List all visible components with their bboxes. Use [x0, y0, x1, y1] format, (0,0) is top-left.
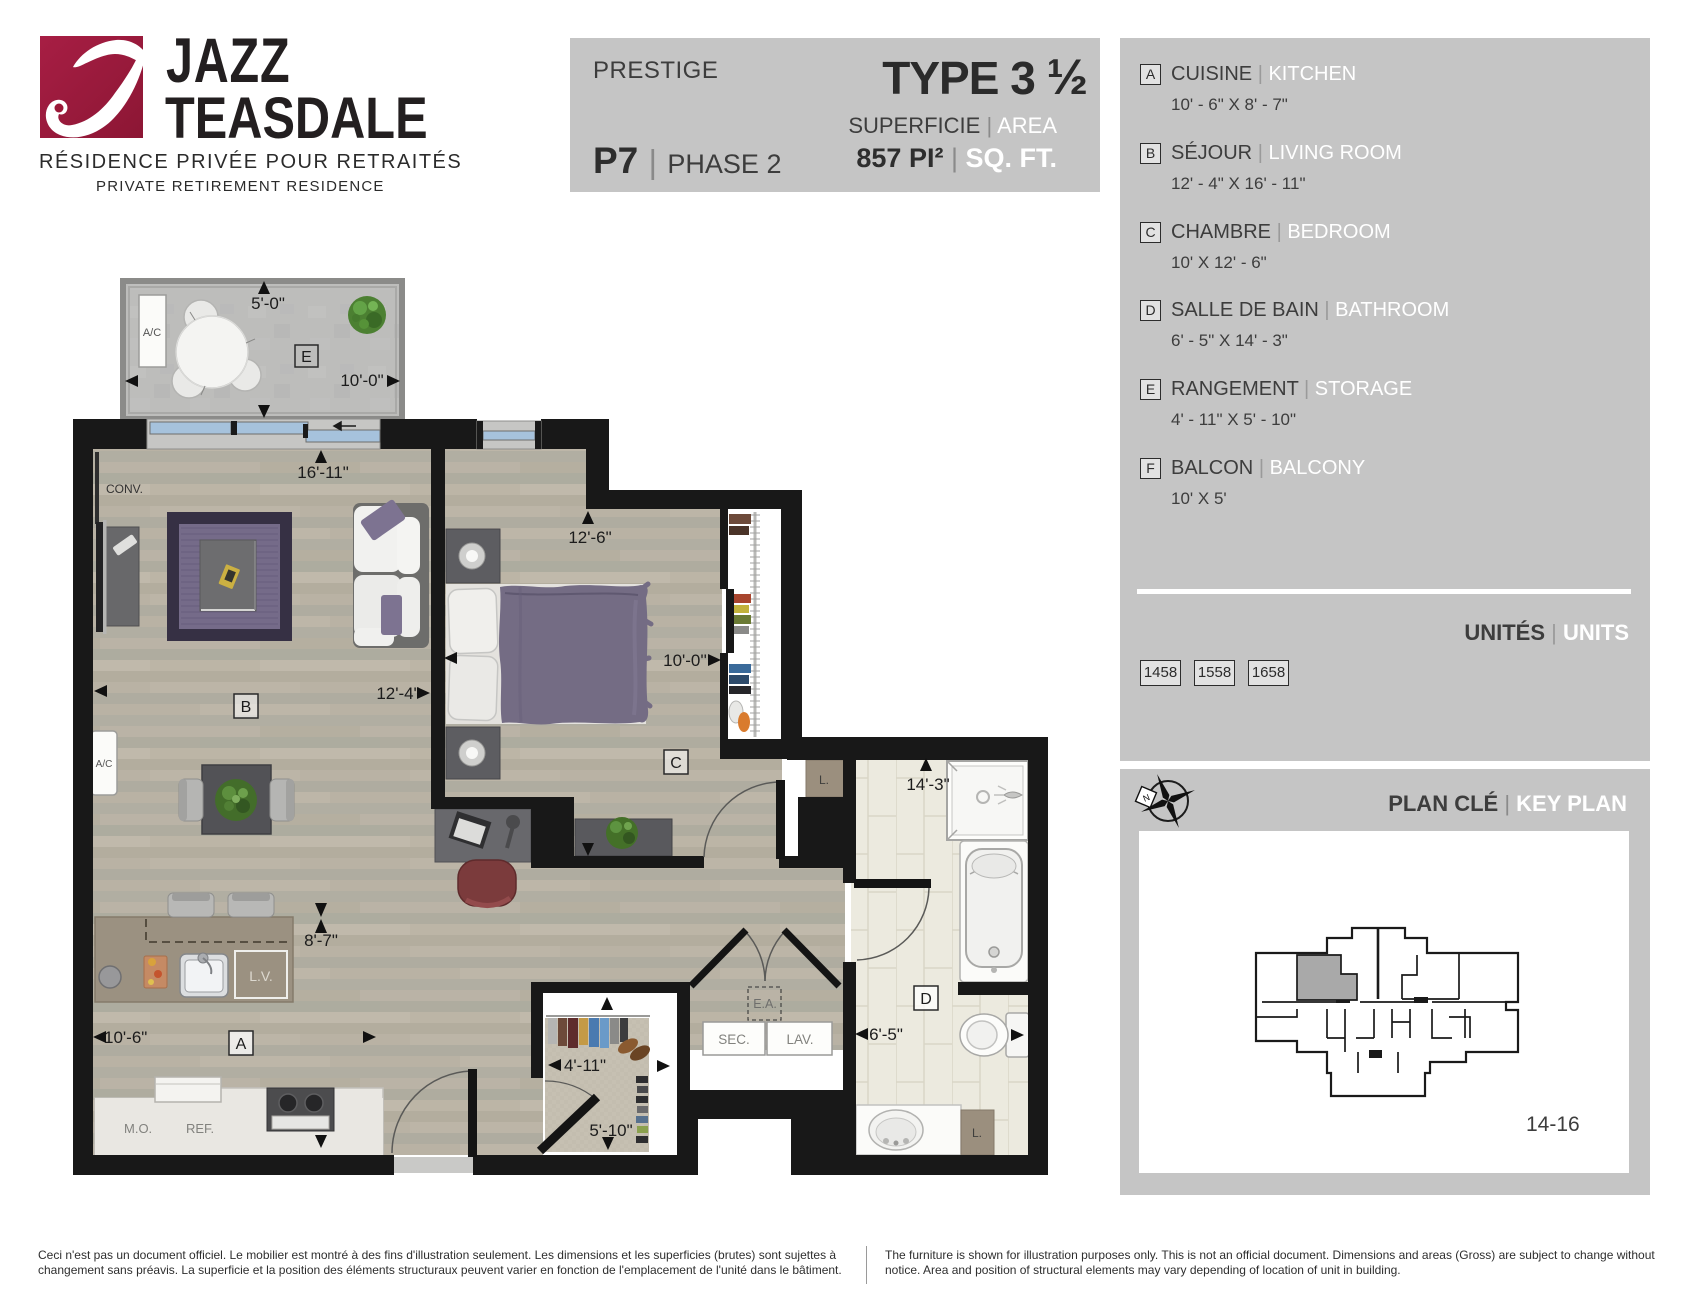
svg-text:4'-11": 4'-11" [564, 1056, 606, 1075]
svg-text:6'-5": 6'-5" [869, 1025, 903, 1044]
svg-text:8'-7": 8'-7" [304, 931, 338, 950]
svg-text:REF.: REF. [186, 1121, 214, 1136]
svg-text:12'-4": 12'-4" [376, 684, 419, 703]
svg-text:SEC.: SEC. [718, 1032, 750, 1047]
svg-text:A/C: A/C [96, 759, 113, 770]
svg-text:M.O.: M.O. [124, 1121, 152, 1136]
svg-text:10'-6": 10'-6" [104, 1028, 147, 1047]
svg-text:L.: L. [819, 773, 829, 787]
svg-text:LAV.: LAV. [786, 1032, 813, 1047]
svg-text:L.: L. [972, 1126, 982, 1140]
svg-text:C: C [670, 755, 682, 772]
svg-text:E.A.: E.A. [753, 997, 777, 1011]
svg-text:E: E [301, 349, 312, 366]
svg-text:14'-3": 14'-3" [906, 775, 949, 794]
svg-text:5'-0": 5'-0" [251, 294, 285, 313]
svg-text:10'-0": 10'-0" [340, 371, 383, 390]
svg-text:A/C: A/C [143, 327, 161, 339]
svg-text:10'-0'': 10'-0'' [663, 651, 707, 670]
svg-text:B: B [241, 699, 252, 716]
svg-text:D: D [920, 991, 932, 1008]
svg-text:L.V.: L.V. [249, 968, 273, 984]
svg-text:16'-11": 16'-11" [297, 463, 349, 482]
svg-text:CONV.: CONV. [106, 482, 143, 496]
svg-text:A: A [236, 1036, 247, 1053]
svg-text:12'-6": 12'-6" [568, 528, 611, 547]
